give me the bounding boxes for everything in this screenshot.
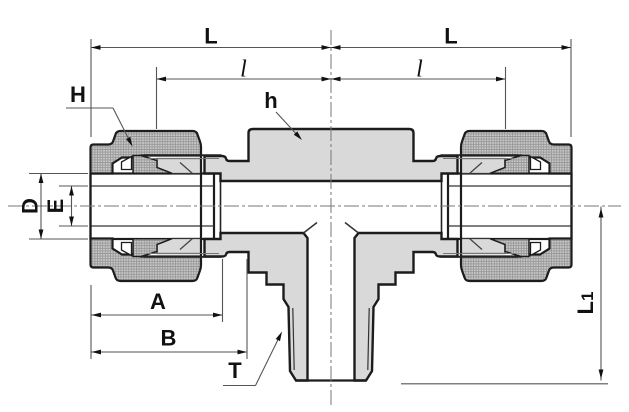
svg-text:H: H	[70, 82, 86, 107]
svg-text:l: l	[240, 57, 247, 83]
svg-text:B: B	[161, 326, 177, 351]
svg-text:E: E	[43, 199, 68, 214]
svg-text:L: L	[444, 24, 457, 49]
svg-text:A: A	[150, 289, 166, 314]
svg-text:D: D	[17, 198, 42, 214]
svg-text:T: T	[228, 358, 242, 383]
svg-text:h: h	[264, 88, 277, 113]
svg-text:l: l	[416, 57, 423, 83]
svg-text:L: L	[204, 24, 217, 49]
